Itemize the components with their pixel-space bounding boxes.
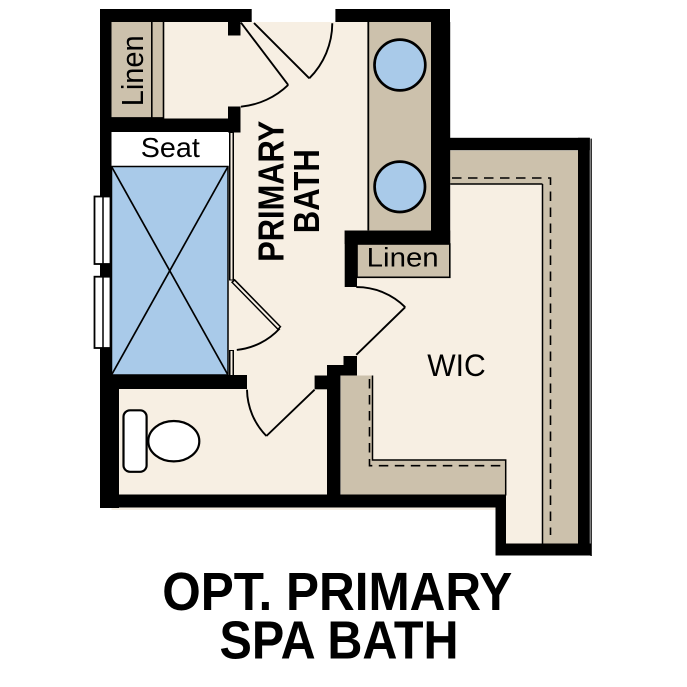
svg-text:Linen: Linen (367, 243, 439, 273)
svg-text:Linen: Linen (116, 35, 150, 106)
svg-text:WIC: WIC (427, 348, 486, 383)
svg-text:Seat: Seat (141, 132, 200, 163)
svg-text:BATH: BATH (286, 149, 327, 233)
svg-text:SPA BATH: SPA BATH (220, 612, 459, 671)
